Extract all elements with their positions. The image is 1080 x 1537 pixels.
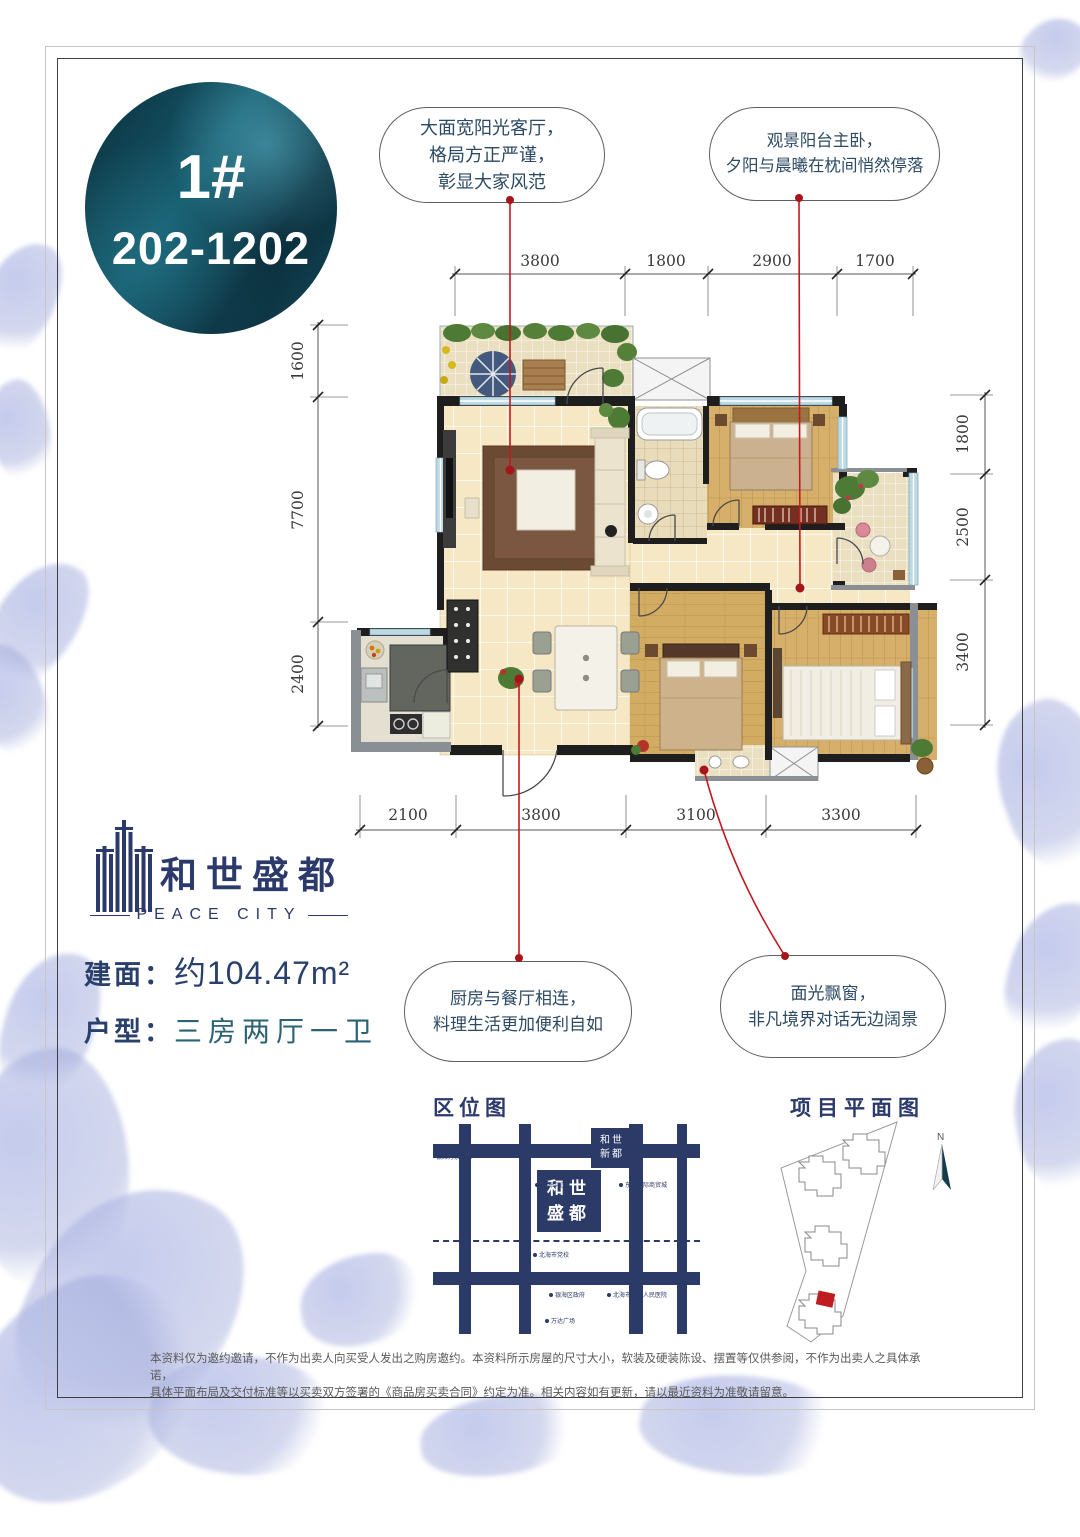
building-number: 1# (177, 147, 246, 209)
poi-dot (607, 1293, 611, 1297)
map-road (433, 1272, 700, 1285)
logo-dash-left (90, 915, 130, 916)
callout-master-bedroom: 观景阳台主卧， 夕阳与晨曦在枕间悄然停落 (709, 107, 940, 201)
floor-plan (345, 318, 945, 800)
map-poi: 中国工商银行 (545, 1148, 587, 1157)
callout-line: 格局方正严谨， (429, 142, 555, 169)
poi-dot (545, 1319, 549, 1323)
callout-line: 非凡境界对话无边阔景 (748, 1007, 918, 1033)
callout-line: 大面宽阳光客厅， (420, 115, 564, 142)
map-poi: 北海市第九中学 (545, 1220, 593, 1229)
spec-unit-type: 户型： 三房两厅一卫 (84, 1010, 378, 1050)
poi-dot (468, 1155, 472, 1159)
map-poi: 北海市第二人民医院 (607, 1290, 667, 1299)
site-plan: N (765, 1116, 965, 1351)
disclaimer: 本资料仅为邀约邀请，不作为出卖人向买受人发出之购房邀约。本资料所示房屋的尺寸大小… (150, 1351, 934, 1402)
unit-range: 202-1202 (112, 223, 310, 275)
poi-dot (535, 1183, 539, 1187)
map-dashed-road (433, 1240, 700, 1242)
building-unit-badge: 1# 202-1202 (85, 82, 337, 334)
map-poi: 银海区政府 (549, 1290, 585, 1299)
north-arrow: N (933, 1132, 951, 1190)
area-value: 约104.47m² (174, 948, 350, 994)
callout-line: 面光飘窗， (791, 981, 876, 1007)
logo-building-icon (96, 820, 154, 912)
logo-english-text: PEACE CITY (130, 906, 307, 924)
spec-floor-area: 建面： 约104.47m² (84, 948, 350, 994)
map-poi: 东盟国际商贸城 (619, 1180, 667, 1189)
location-map-title: 区位图 (433, 1092, 511, 1122)
callout-bay-window: 面光飘窗， 非凡境界对话无边阔景 (720, 955, 946, 1058)
disclaimer-line1: 本资料仅为邀约邀请，不作为出卖人向买受人发出之购房邀约。本资料所示房屋的尺寸大小… (150, 1351, 934, 1385)
poi-dot (549, 1293, 553, 1297)
poi-dot (619, 1183, 623, 1187)
map-poi: 北海市党校 (533, 1250, 569, 1259)
callout-kitchen: 厨房与餐厅相连， 料理生活更加便利自如 (404, 961, 632, 1062)
poi-dot (583, 1151, 587, 1155)
poi-dot (533, 1253, 537, 1257)
callout-line: 料理生活更加便利自如 (433, 1012, 603, 1038)
site-building (805, 1226, 847, 1266)
type-value: 三房两厅一卫 (174, 1010, 378, 1050)
map-poi: 万达广场 (545, 1316, 575, 1325)
svg-text:N: N (937, 1132, 944, 1143)
project-name: 和世盛都 (160, 845, 344, 899)
map-poi: 银滩万泉城 (436, 1152, 472, 1161)
callout-line: 彰显大家风范 (438, 169, 546, 196)
location-map: 和世 新都 和世 盛都 银滩万泉城 中国工商银行 北海中心 北海市第九中学 北海… (433, 1124, 700, 1334)
callout-line: 夕阳与晨曦在枕间悄然停落 (726, 154, 924, 179)
area-label: 建面： (84, 953, 174, 992)
project-name-english: PEACE CITY (90, 906, 348, 924)
map-poi: 北海中心 (535, 1180, 565, 1189)
type-label: 户型： (84, 1010, 174, 1049)
disclaimer-line2: 具体平面布局及交付标准等以买卖双方签署的《商品房买卖合同》约定为准。相关内容如有… (150, 1385, 934, 1402)
map-label-sister-project: 和世 新都 (591, 1128, 633, 1168)
callout-line: 观景阳台主卧， (767, 129, 883, 154)
callout-line: 厨房与餐厅相连， (450, 986, 586, 1012)
site-building (799, 1156, 841, 1196)
logo-dash-right (308, 915, 348, 916)
callout-living-room: 大面宽阳光客厅， 格局方正严谨， 彰显大家风范 (379, 107, 605, 203)
poi-dot (545, 1223, 549, 1227)
site-building (843, 1134, 885, 1174)
